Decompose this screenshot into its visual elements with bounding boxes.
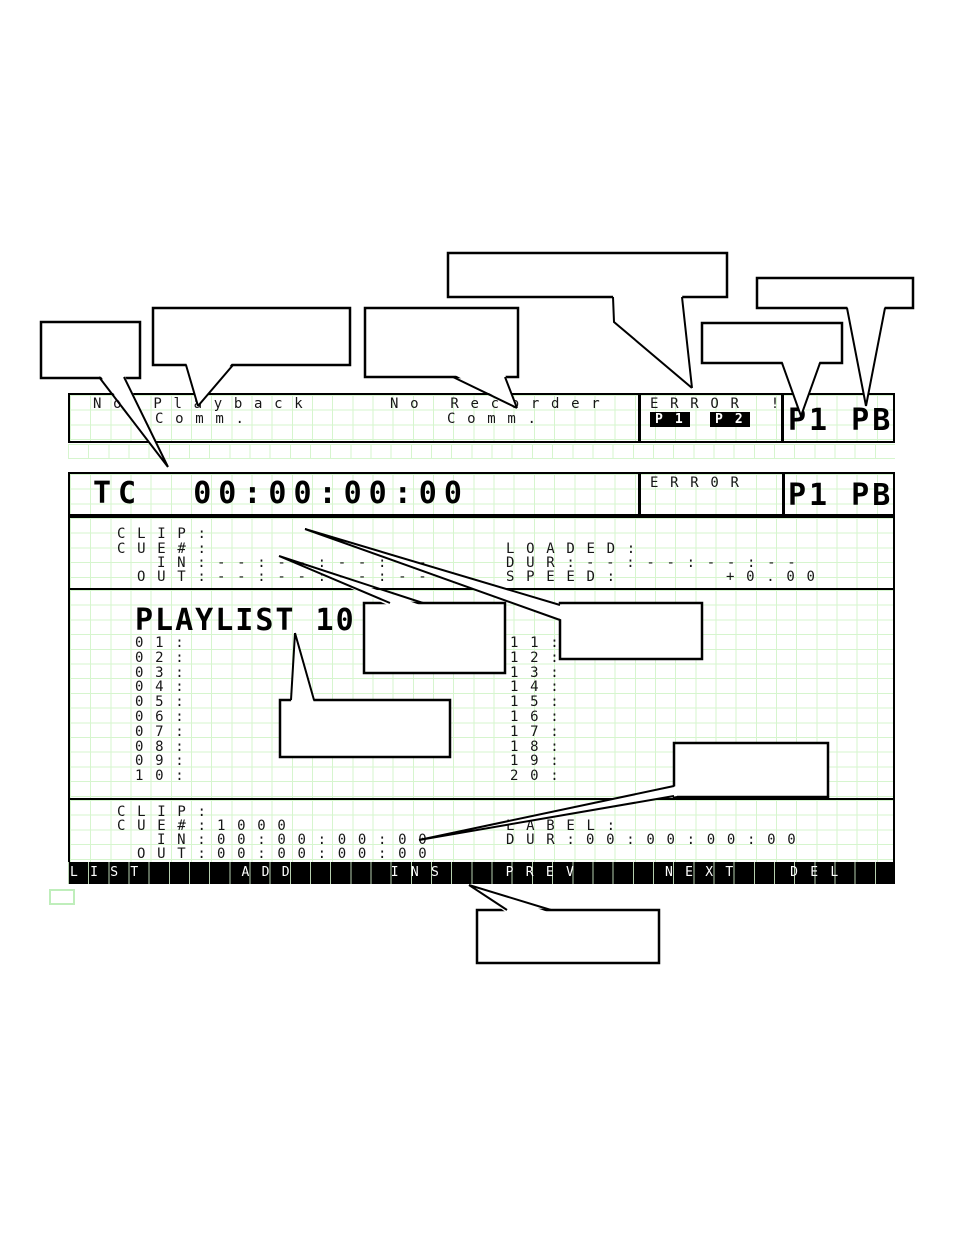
timecode-display: TC 00:00:00:00 [93, 479, 469, 509]
playlist-row: 15: [510, 695, 570, 709]
cue-value: 1000 [217, 819, 298, 833]
playlist-row: 06: [135, 710, 195, 724]
playlist-row: 11: [510, 636, 570, 650]
clip-edit-panel: CLIP: CUE#: 1000 IN: 00:00:00:00 OUT: 00… [68, 798, 895, 864]
timecode-bar: TC 00:00:00:00 ERR0R P1 PB [68, 472, 895, 516]
playlist-row: 03: [135, 666, 195, 680]
callout-pb [757, 278, 913, 406]
channel-indicator: P1 PB [788, 481, 893, 511]
out-value: 00:00:00:00 [217, 847, 438, 861]
playlist-row: 16: [510, 710, 570, 724]
playlist-row: 10: [135, 769, 195, 783]
callout-error [448, 253, 727, 388]
softkey-prev: PREV [506, 866, 587, 879]
dur-value: 00:00:00:00 [586, 833, 807, 847]
playlist-row: 01: [135, 636, 195, 650]
softkey-add: ADD [241, 866, 301, 879]
playlist-row: 13: [510, 666, 570, 680]
label-label: LABEL: [506, 819, 627, 833]
in-label: IN: [157, 833, 217, 847]
in-value: 00:00:00:00 [217, 833, 438, 847]
p1-error-badge: P1 [650, 412, 690, 427]
grid-strip [68, 444, 895, 459]
dur-label: DUR: [506, 833, 587, 847]
playlist-row: 07: [135, 725, 195, 739]
out-label: OUT: [137, 570, 218, 584]
softkey-ins: INS [391, 866, 451, 879]
softkey-next: NEXT [665, 866, 746, 879]
playlist-row: 08: [135, 740, 195, 754]
error-text: ERROR ! [650, 397, 791, 411]
status-screen: No Playback Comm. No Recorder Comm. ERRO… [68, 393, 895, 443]
cue-label: CUE#: [117, 819, 218, 833]
callout-softkeys [469, 885, 659, 963]
in-label: IN: [157, 556, 217, 570]
playlist-title: PLAYLIST 10 [135, 606, 356, 636]
section-divider [782, 474, 785, 514]
playback-message-line1: No Playback [93, 397, 314, 411]
softkey-menu-bar: LISTADDINSPREVNEXTDEL [68, 862, 895, 884]
speed-value: +0.00 [726, 570, 827, 584]
clip-label: CLIP: [117, 805, 218, 819]
section-divider [638, 395, 641, 441]
playlist-row: 12: [510, 651, 570, 665]
playlist-row: 19: [510, 754, 570, 768]
loaded-label: LOADED: [506, 542, 647, 556]
cue-label: CUE#: [117, 542, 218, 556]
section-divider [638, 474, 641, 514]
recorder-message-line1: No Recorder [390, 397, 611, 411]
manual-diagram-page: No Playback Comm. No Recorder Comm. ERRO… [0, 0, 954, 1235]
playlist-row: 14: [510, 680, 570, 694]
recorder-message-line2: Comm. [447, 412, 548, 426]
error-text: ERR0R [650, 476, 751, 490]
out-value: --:--:--:-- [217, 570, 438, 584]
playlist-row: 20: [510, 769, 570, 783]
playlist-row: 04: [135, 680, 195, 694]
playlist-row: 02: [135, 651, 195, 665]
playlist-row: 09: [135, 754, 195, 768]
playlist-panel: PLAYLIST 10 01:02:03:04:05:06:07:08:09:1… [68, 588, 895, 800]
in-value: --:--:--:-- [217, 556, 438, 570]
playback-message-line2: Comm. [155, 412, 256, 426]
softkey-list: LIST [70, 866, 151, 879]
clip-label: CLIP: [117, 527, 218, 541]
softkey-del: DEL [790, 866, 850, 879]
speed-label: SPEED: [506, 570, 627, 584]
grid-square [49, 889, 75, 905]
clip-status-panel: CLIP: CUE#: IN: --:--:--:-- OUT: --:--:-… [68, 516, 895, 590]
dur-value: --:--:--:-- [586, 556, 807, 570]
section-divider [781, 395, 784, 441]
playlist-row: 17: [510, 725, 570, 739]
out-label: OUT: [137, 847, 218, 861]
playlist-row: 05: [135, 695, 195, 709]
playlist-row: 18: [510, 740, 570, 754]
p2-error-badge: P2 [710, 412, 750, 427]
dur-label: DUR: [506, 556, 587, 570]
callout-playback-msg [153, 308, 350, 406]
channel-indicator: P1 PB [788, 406, 893, 436]
